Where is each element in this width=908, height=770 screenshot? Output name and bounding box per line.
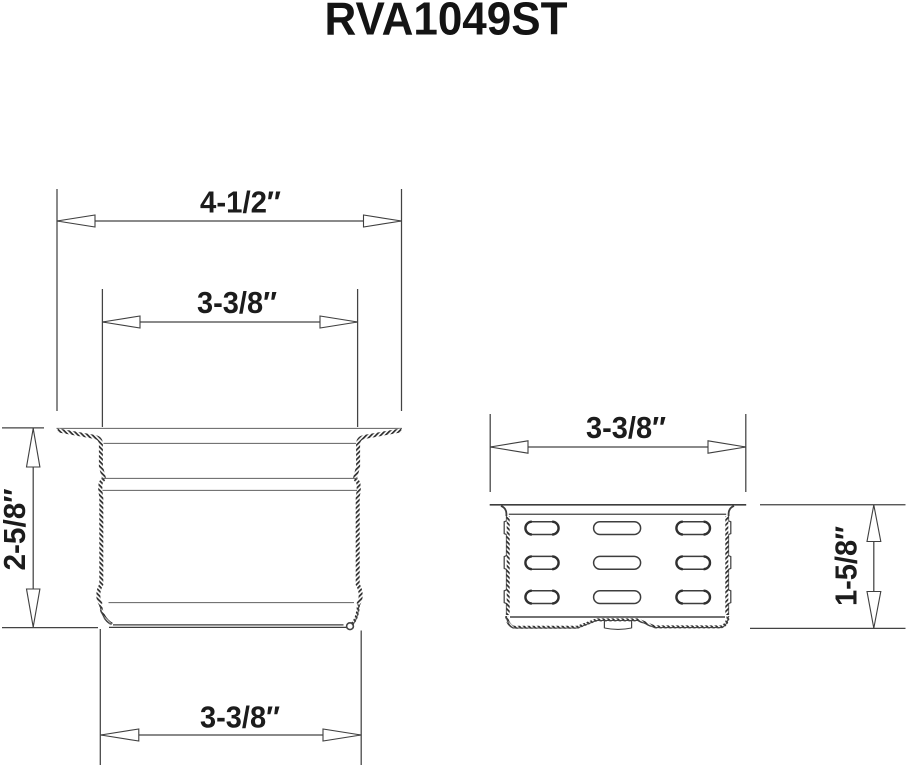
- svg-text:1-5/8″: 1-5/8″: [829, 526, 864, 606]
- svg-text:3-3/8″: 3-3/8″: [200, 700, 280, 735]
- svg-text:3-3/8″: 3-3/8″: [586, 410, 666, 445]
- svg-text:3-3/8″: 3-3/8″: [197, 285, 277, 320]
- svg-text:RVA1049ST: RVA1049ST: [325, 0, 568, 45]
- svg-text:4-1/2″: 4-1/2″: [200, 185, 281, 220]
- svg-text:2-5/8″: 2-5/8″: [0, 488, 32, 570]
